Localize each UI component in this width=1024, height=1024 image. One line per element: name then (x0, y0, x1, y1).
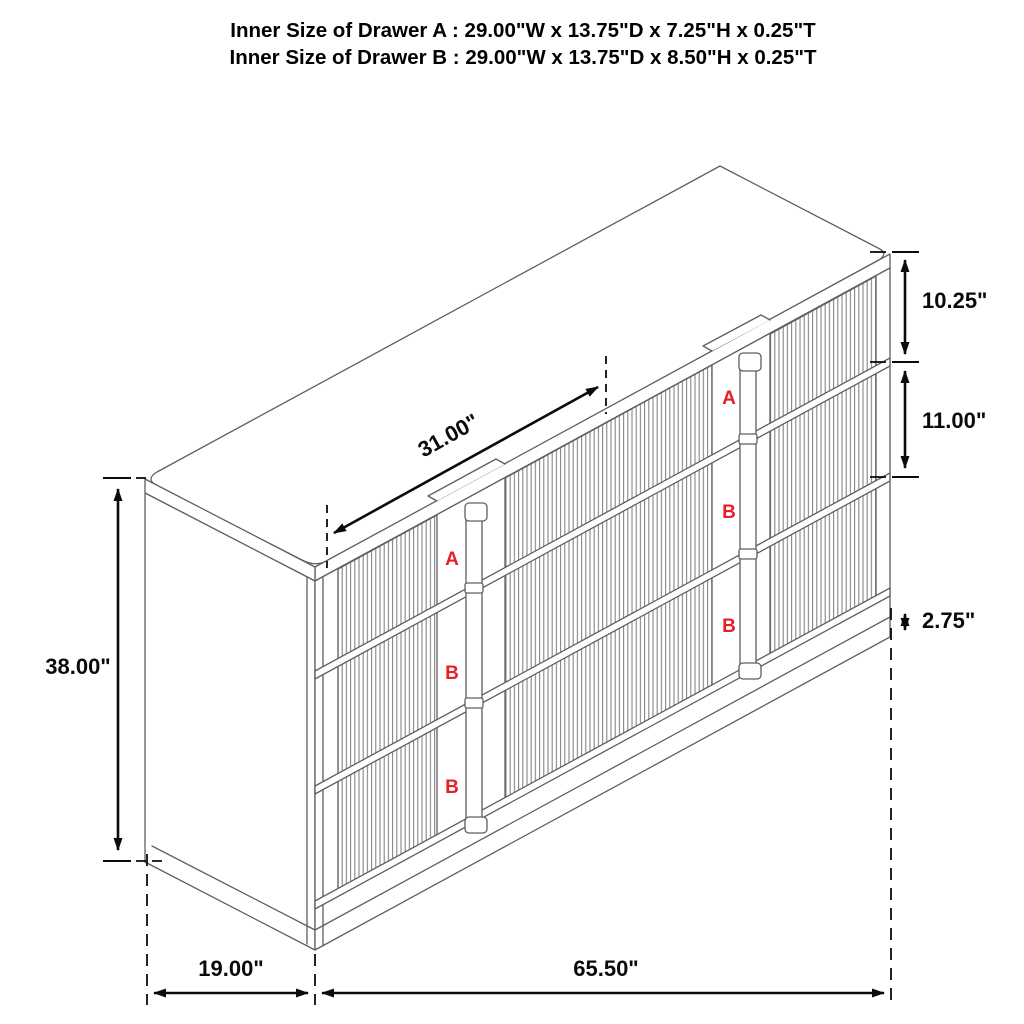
dimension-label-1900: 19.00" (198, 956, 263, 981)
drawer-label-left-b1: B (445, 663, 459, 684)
dimension-label-3800: 38.00" (45, 654, 110, 679)
title-line-2: Inner Size of Drawer B : 29.00"W x 13.75… (230, 46, 817, 69)
drawer-label-right-b1: B (722, 502, 736, 523)
furniture-dimension-diagram: Inner Size of Drawer A : 29.00"W x 13.75… (0, 0, 1024, 1024)
dimension-label-1025: 10.25" (922, 288, 987, 313)
dimension-label-1100: 11.00" (922, 408, 986, 433)
drawer-label-right-b2: B (722, 616, 736, 637)
drawer-label-right-a: A (722, 388, 736, 409)
drawer-label-left-b2: B (445, 777, 459, 798)
diagram-canvas: Inner Size of Drawer A : 29.00"W x 13.75… (0, 0, 1024, 1024)
dimension-label-6550: 65.50" (573, 956, 638, 981)
drawer-label-left-a: A (445, 549, 459, 570)
dimension-label-275: 2.75" (922, 608, 975, 633)
dresser-drawing: A B B A B B (145, 166, 890, 950)
dimension-base-height: 2.75" (905, 608, 975, 633)
fluted-panel-left (338, 515, 437, 889)
title-line-1: Inner Size of Drawer A : 29.00"W x 13.75… (230, 19, 816, 42)
fluted-panel-right (770, 276, 876, 654)
